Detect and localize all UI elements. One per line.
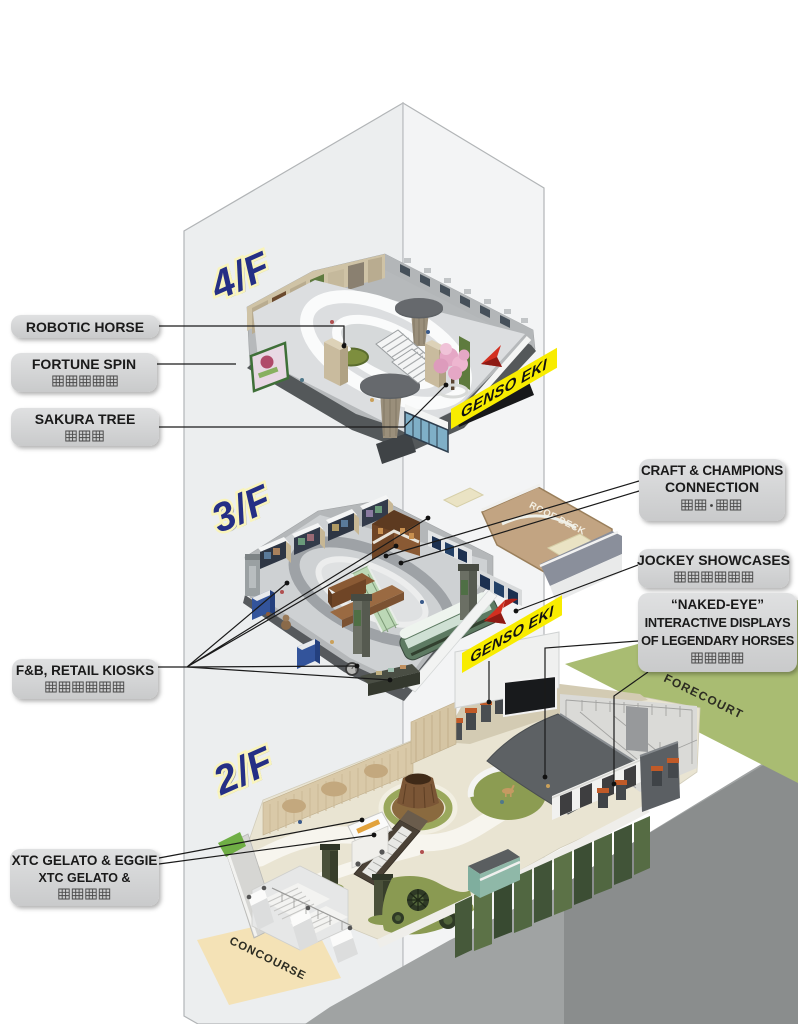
- svg-text:XTC GELATO & EGGIE: XTC GELATO & EGGIE: [12, 853, 158, 868]
- svg-text:F&B, RETAIL KIOSKS: F&B, RETAIL KIOSKS: [16, 663, 154, 678]
- svg-text:FORTUNE SPIN: FORTUNE SPIN: [32, 356, 136, 372]
- svg-text:“NAKED-EYE”: “NAKED-EYE”: [671, 597, 764, 612]
- svg-text:INTERACTIVE DISPLAYS: INTERACTIVE DISPLAYS: [645, 615, 791, 630]
- svg-text:XTC GELATO &: XTC GELATO &: [39, 871, 131, 885]
- svg-text:CONNECTION: CONNECTION: [665, 479, 759, 495]
- svg-text:OF LEGENDARY HORSES: OF LEGENDARY HORSES: [641, 633, 795, 648]
- svg-text:JOCKEY SHOWCASES: JOCKEY SHOWCASES: [637, 552, 790, 568]
- svg-text:ROBOTIC HORSE: ROBOTIC HORSE: [26, 319, 144, 335]
- svg-text:SAKURA TREE: SAKURA TREE: [35, 411, 136, 427]
- svg-text:CRAFT & CHAMPIONS: CRAFT & CHAMPIONS: [641, 463, 783, 478]
